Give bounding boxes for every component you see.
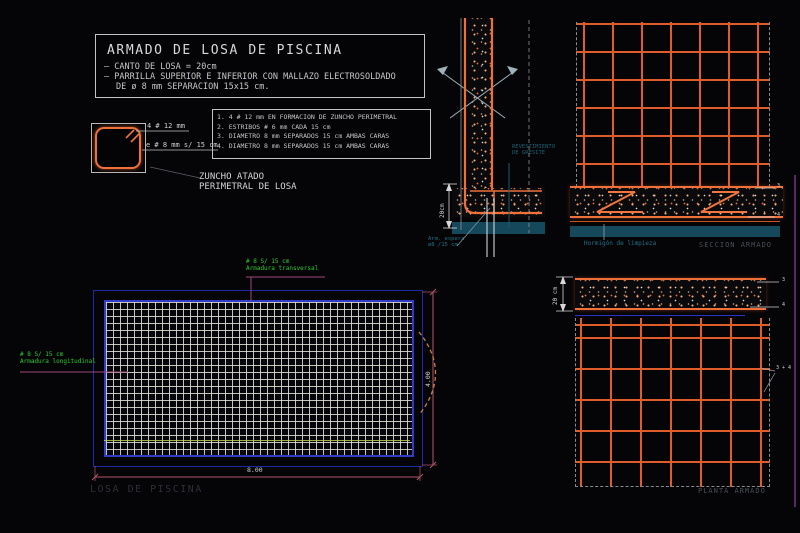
note-item-1: 1. 4 # 12 mm EN FORMACION DE ZUNCHO PERI…: [217, 113, 430, 123]
transversal-rebar-name: Armadura transversal: [246, 266, 318, 273]
longitudinal-rebar-label: # 8 S/ 15 cm Armadura longitudinal: [20, 352, 96, 366]
dowel-label: Arm. espera ø8 /15 cm: [428, 236, 464, 249]
notes-block: 1. 4 # 12 mm EN FORMACION DE ZUNCHO PERI…: [212, 109, 431, 159]
note-item-4: 4. DIAMETRO 8 mm SEPARADOS 15 cm AMBAS C…: [217, 142, 430, 152]
section-caption: SECCION ARMADO: [699, 241, 772, 249]
title-note-3: DE ø 8 mm SEPARACION 15x15 cm.: [104, 82, 424, 92]
planta-blue-line: [575, 315, 745, 316]
planta-rebar-grid: [575, 318, 770, 487]
planta-depth-dimension: 20 cm: [553, 287, 560, 305]
dowel-label-line2: ø8 /15 cm: [428, 242, 464, 248]
section-bottom-rebar-line: [570, 221, 780, 222]
section-callout-bottom: 4: [777, 213, 780, 219]
title-note-2: – PARRILLA SUPERIOR E INFERIOR CON MALLA…: [104, 72, 424, 82]
planta-caption: PLANTA ARMADO: [698, 487, 766, 495]
stirrup-caption-line2: PERIMETRAL DE LOSA: [199, 182, 297, 192]
note-item-2: 2. ESTRIBOS # 6 mm CADA 15 cm: [217, 123, 430, 133]
stirrup-caption-leader: [150, 167, 200, 178]
stirrup-spacing-label: e # 8 mm s/ 15 cm: [146, 141, 218, 149]
section-callout-top: 3: [777, 184, 780, 190]
wall-footing-concrete-texture: [452, 188, 545, 217]
title-note-1: – CANTO DE LOSA = 20cm: [104, 62, 424, 72]
wall-concrete-texture: [467, 18, 492, 205]
note-item-3: 3. DIAMETRO 8 mm SEPARADOS 15 cm AMBAS C…: [217, 132, 430, 142]
stirrup-shape: [95, 127, 141, 169]
stirrup-caption-line1: ZUNCHO ATADO: [199, 172, 297, 182]
planta-grid-callout: 3 + 4: [776, 366, 791, 372]
plan-height-dimension: 4.00: [425, 371, 432, 387]
pool-mesh-grid: [104, 300, 414, 457]
title-block: ARMADO DE LOSA DE PISCINA – CANTO DE LOS…: [95, 34, 425, 98]
finish-label-line2: DE GRESITE: [512, 150, 555, 156]
lean-concrete-label: Hormigón de limpieza: [584, 241, 656, 248]
section-wall-rebar-grid: [576, 22, 770, 187]
plan-caption: LOSA DE PISCINA: [90, 484, 203, 496]
section-slab-concrete: [570, 186, 783, 218]
transversal-rebar-label: # 8 S/ 15 cm Armadura transversal: [246, 259, 318, 273]
stirrup-bars-label: 4 # 12 mm: [147, 122, 185, 130]
longitudinal-rebar-name: Armadura longitudinal: [20, 359, 96, 366]
title-notes: – CANTO DE LOSA = 20cm – PARRILLA SUPERI…: [96, 62, 424, 92]
planta-slab-concrete: [575, 278, 766, 310]
finish-label: REVESTIMIENTO DE GRESITE: [512, 144, 555, 157]
planta-callout-top: 3: [782, 278, 785, 284]
cad-drawing-canvas: # 8 S/ 15 cm Armadura transversal # 8 S/…: [0, 0, 800, 533]
wall-depth-dimension: 20cm: [440, 204, 447, 218]
section-lean-concrete-band: [570, 226, 780, 237]
notes-list: 1. 4 # 12 mm EN FORMACION DE ZUNCHO PERI…: [213, 110, 430, 151]
drawing-title: ARMADO DE LOSA DE PISCINA: [96, 35, 424, 62]
plan-width-dimension: 8.00: [247, 467, 263, 474]
stirrup-caption: ZUNCHO ATADO PERIMETRAL DE LOSA: [199, 172, 297, 193]
mesh-highlight-line: [104, 440, 410, 441]
planta-callout-bottom: 4: [782, 303, 785, 309]
wall-lean-concrete-band: [452, 222, 545, 234]
